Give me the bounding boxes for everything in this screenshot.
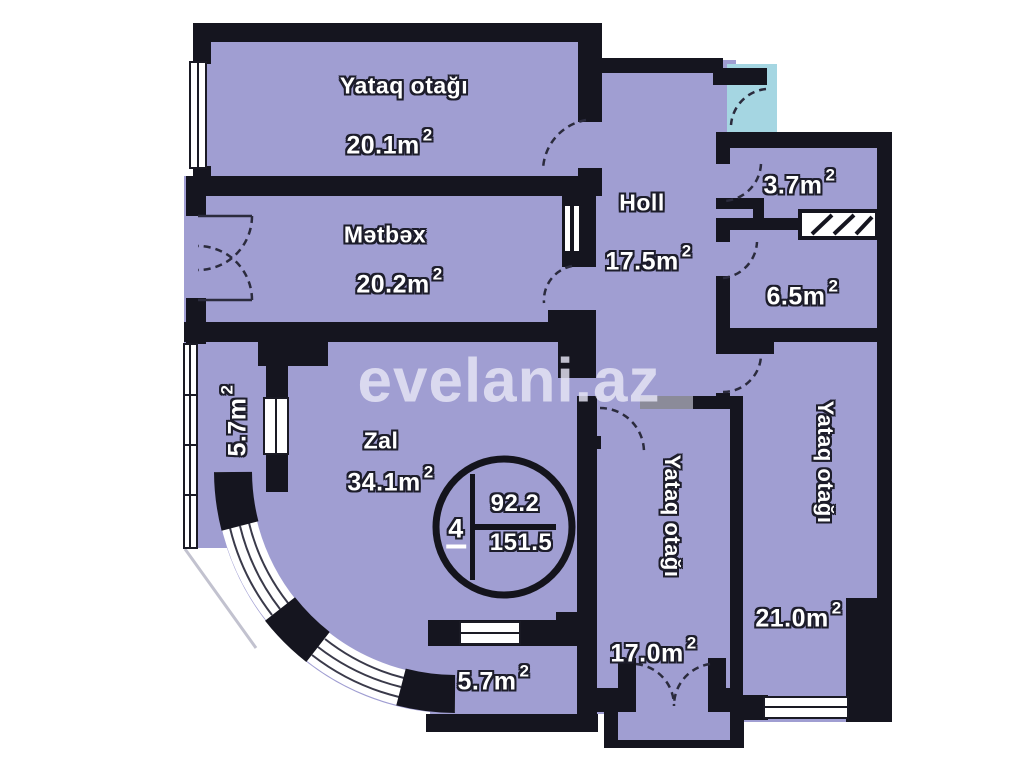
label-bedroom-right-area: 21.0m2 <box>755 605 838 634</box>
duct-shaft-bath <box>800 211 877 238</box>
floor-plan: evelani.az Yataq otağı 20.1m2 Mətbəx 20.… <box>0 0 1024 760</box>
label-bedroom-top-name: Yataq otağı <box>340 73 468 100</box>
label-balcony-left-area: 5.7m2 <box>224 388 253 457</box>
label-living-room-name: Zal <box>364 428 399 455</box>
label-wc-area: 3.7m2 <box>764 172 833 201</box>
label-bedroom-right-name: Yataq otağı <box>812 401 838 524</box>
summary-rooms-count: 4 <box>446 514 466 545</box>
label-hall-area: 17.5m2 <box>605 248 688 277</box>
label-kitchen-name: Mətbəx <box>344 222 426 249</box>
label-bedroom-middle-area: 17.0m2 <box>610 640 693 669</box>
label-balcony-bottom-area: 5.7m2 <box>458 668 527 697</box>
label-bathroom-area: 6.5m2 <box>767 283 836 312</box>
summary-total-area: 151.5 <box>490 529 553 557</box>
label-bedroom-middle-name: Yataq otağı <box>659 455 685 578</box>
summary-living-area: 92.2 <box>491 490 540 518</box>
watermark: evelani.az <box>358 346 661 417</box>
label-bedroom-top-area: 20.1m2 <box>346 132 429 161</box>
label-kitchen-area: 20.2m2 <box>356 271 439 300</box>
label-living-room-area: 34.1m2 <box>347 469 430 498</box>
label-hall-name: Holl <box>619 190 664 217</box>
